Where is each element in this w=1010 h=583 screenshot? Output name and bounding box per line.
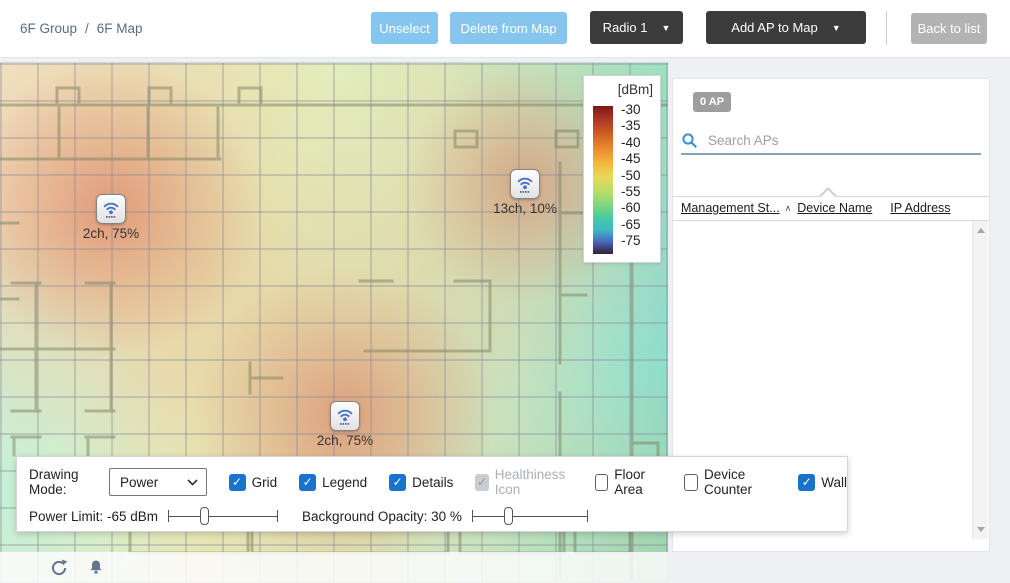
legend-tick-labels: -30 -35 -40 -45 -50 -55 -60 -65 -75: [621, 102, 641, 250]
checkbox-grid-label: Grid: [252, 475, 278, 490]
breadcrumb: 6F Group / 6F Map: [20, 21, 143, 36]
checkbox-details[interactable]: Details: [389, 474, 453, 491]
add-ap-to-map-dropdown[interactable]: Add AP to Map ▼: [706, 11, 866, 44]
wifi-icon: [334, 405, 356, 427]
radio-dropdown[interactable]: Radio 1 ▼: [590, 11, 683, 44]
background-opacity-slider[interactable]: [472, 506, 588, 526]
checkbox-wall-label: Wall: [821, 475, 847, 490]
checkbox-floor-area-label: Floor Area: [614, 467, 662, 497]
legend-tick: -55: [621, 184, 641, 200]
slider-end-tick: [168, 510, 169, 522]
column-management-state[interactable]: Management St...: [681, 201, 780, 215]
ap-marker[interactable]: 2ch, 75%: [96, 194, 126, 224]
legend-tick: -40: [621, 135, 641, 151]
map-footer-bar: [0, 552, 668, 583]
power-limit-slider-thumb[interactable]: [200, 507, 209, 525]
power-limit-slider[interactable]: [168, 506, 278, 526]
background-opacity-label: Background Opacity: 30 %: [302, 509, 462, 524]
search-icon: [681, 132, 698, 149]
scrollbar[interactable]: [972, 221, 988, 539]
legend-tick: -65: [621, 217, 641, 233]
power-limit-label: Power Limit: -65 dBm: [29, 509, 158, 524]
breadcrumb-group[interactable]: 6F Group: [20, 21, 77, 36]
legend-tick: -35: [621, 118, 641, 134]
ap-label: 2ch, 75%: [83, 226, 139, 241]
back-to-list-button[interactable]: Back to list: [911, 13, 987, 44]
legend-tick: -50: [621, 168, 641, 184]
checkbox-disabled-icon: [475, 474, 488, 491]
drawing-mode-select[interactable]: Power: [109, 468, 207, 496]
ap-icon[interactable]: [330, 401, 360, 431]
bell-icon[interactable]: [88, 559, 104, 576]
ap-icon[interactable]: [510, 169, 540, 199]
radio-dropdown-label: Radio 1: [603, 20, 648, 35]
legend-title: [dBm]: [618, 82, 653, 97]
checkbox-legend[interactable]: Legend: [299, 474, 367, 491]
checkbox-legend-label: Legend: [322, 475, 367, 490]
chevron-down-icon: ▼: [832, 23, 841, 33]
unselect-button[interactable]: Unselect: [371, 12, 438, 44]
checkbox-checked-icon: [229, 474, 246, 491]
slider-track[interactable]: [472, 516, 588, 517]
toolbar-divider: [886, 11, 887, 45]
checkbox-grid[interactable]: Grid: [229, 474, 278, 491]
ap-search: [681, 127, 981, 155]
column-device-name[interactable]: Device Name: [797, 201, 872, 215]
scroll-up-icon[interactable]: [977, 228, 985, 233]
breadcrumb-current: 6F Map: [97, 21, 143, 36]
ap-marker[interactable]: 13ch, 10%: [510, 169, 540, 199]
checkbox-device-counter-label: Device Counter: [704, 467, 776, 497]
checkbox-checked-icon: [798, 474, 815, 491]
slider-track[interactable]: [168, 516, 278, 517]
checkbox-unchecked-icon: [595, 474, 609, 491]
wifi-icon: [100, 198, 122, 220]
ap-marker[interactable]: 2ch, 75%: [330, 401, 360, 431]
checkbox-healthiness-label: Healthiness Icon: [495, 467, 573, 497]
drawing-mode-label: Drawing Mode:: [29, 467, 101, 497]
drawing-mode-value: Power: [120, 475, 158, 490]
breadcrumb-separator: /: [85, 21, 89, 36]
add-ap-to-map-label: Add AP to Map: [731, 20, 818, 35]
slider-end-tick: [277, 510, 278, 522]
legend-color-scale: [593, 106, 613, 254]
legend-tick: -60: [621, 200, 641, 216]
ap-table-header: Management St... ∧ Device Name IP Addres…: [681, 201, 951, 215]
checkbox-details-label: Details: [412, 475, 453, 490]
column-ip-address[interactable]: IP Address: [890, 201, 950, 215]
slider-end-tick: [472, 510, 473, 522]
refresh-icon[interactable]: [50, 559, 68, 577]
slider-end-tick: [587, 510, 588, 522]
chevron-down-icon: ▼: [661, 23, 670, 33]
checkbox-device-counter[interactable]: Device Counter: [684, 467, 776, 497]
checkbox-checked-icon: [389, 474, 406, 491]
checkbox-unchecked-icon: [684, 474, 698, 491]
checkbox-floor-area[interactable]: Floor Area: [595, 467, 663, 497]
checkbox-checked-icon: [299, 474, 316, 491]
delete-from-map-button-label: Delete from Map: [460, 21, 556, 36]
wifi-icon: [514, 173, 536, 195]
back-to-list-label: Back to list: [918, 21, 981, 36]
legend-tick: -30: [621, 102, 641, 118]
signal-legend: [dBm] -30 -35 -40 -45 -50 -55 -60 -65 -7…: [583, 75, 661, 263]
ap-label: 13ch, 10%: [493, 201, 557, 216]
collapse-notch-fill: [821, 190, 835, 197]
top-bar: 6F Group / 6F Map Unselect Delete from M…: [0, 0, 1010, 58]
checkbox-wall[interactable]: Wall: [798, 474, 847, 491]
ap-count-badge: 0 AP: [693, 92, 731, 112]
legend-tick: -75: [621, 233, 641, 249]
checkbox-healthiness-icon: Healthiness Icon: [475, 467, 572, 497]
legend-tick: -45: [621, 151, 641, 167]
map-options-panel: Drawing Mode: Power Grid Legend Details …: [16, 456, 848, 532]
ap-label: 2ch, 75%: [317, 433, 373, 448]
delete-from-map-button[interactable]: Delete from Map: [450, 12, 567, 44]
background-opacity-slider-thumb[interactable]: [504, 507, 513, 525]
scroll-down-icon[interactable]: [977, 527, 985, 532]
ap-icon[interactable]: [96, 194, 126, 224]
sort-ascending-icon: ∧: [785, 203, 792, 214]
chevron-down-icon: [187, 479, 198, 486]
unselect-button-label: Unselect: [379, 21, 430, 36]
search-input[interactable]: [708, 133, 981, 148]
